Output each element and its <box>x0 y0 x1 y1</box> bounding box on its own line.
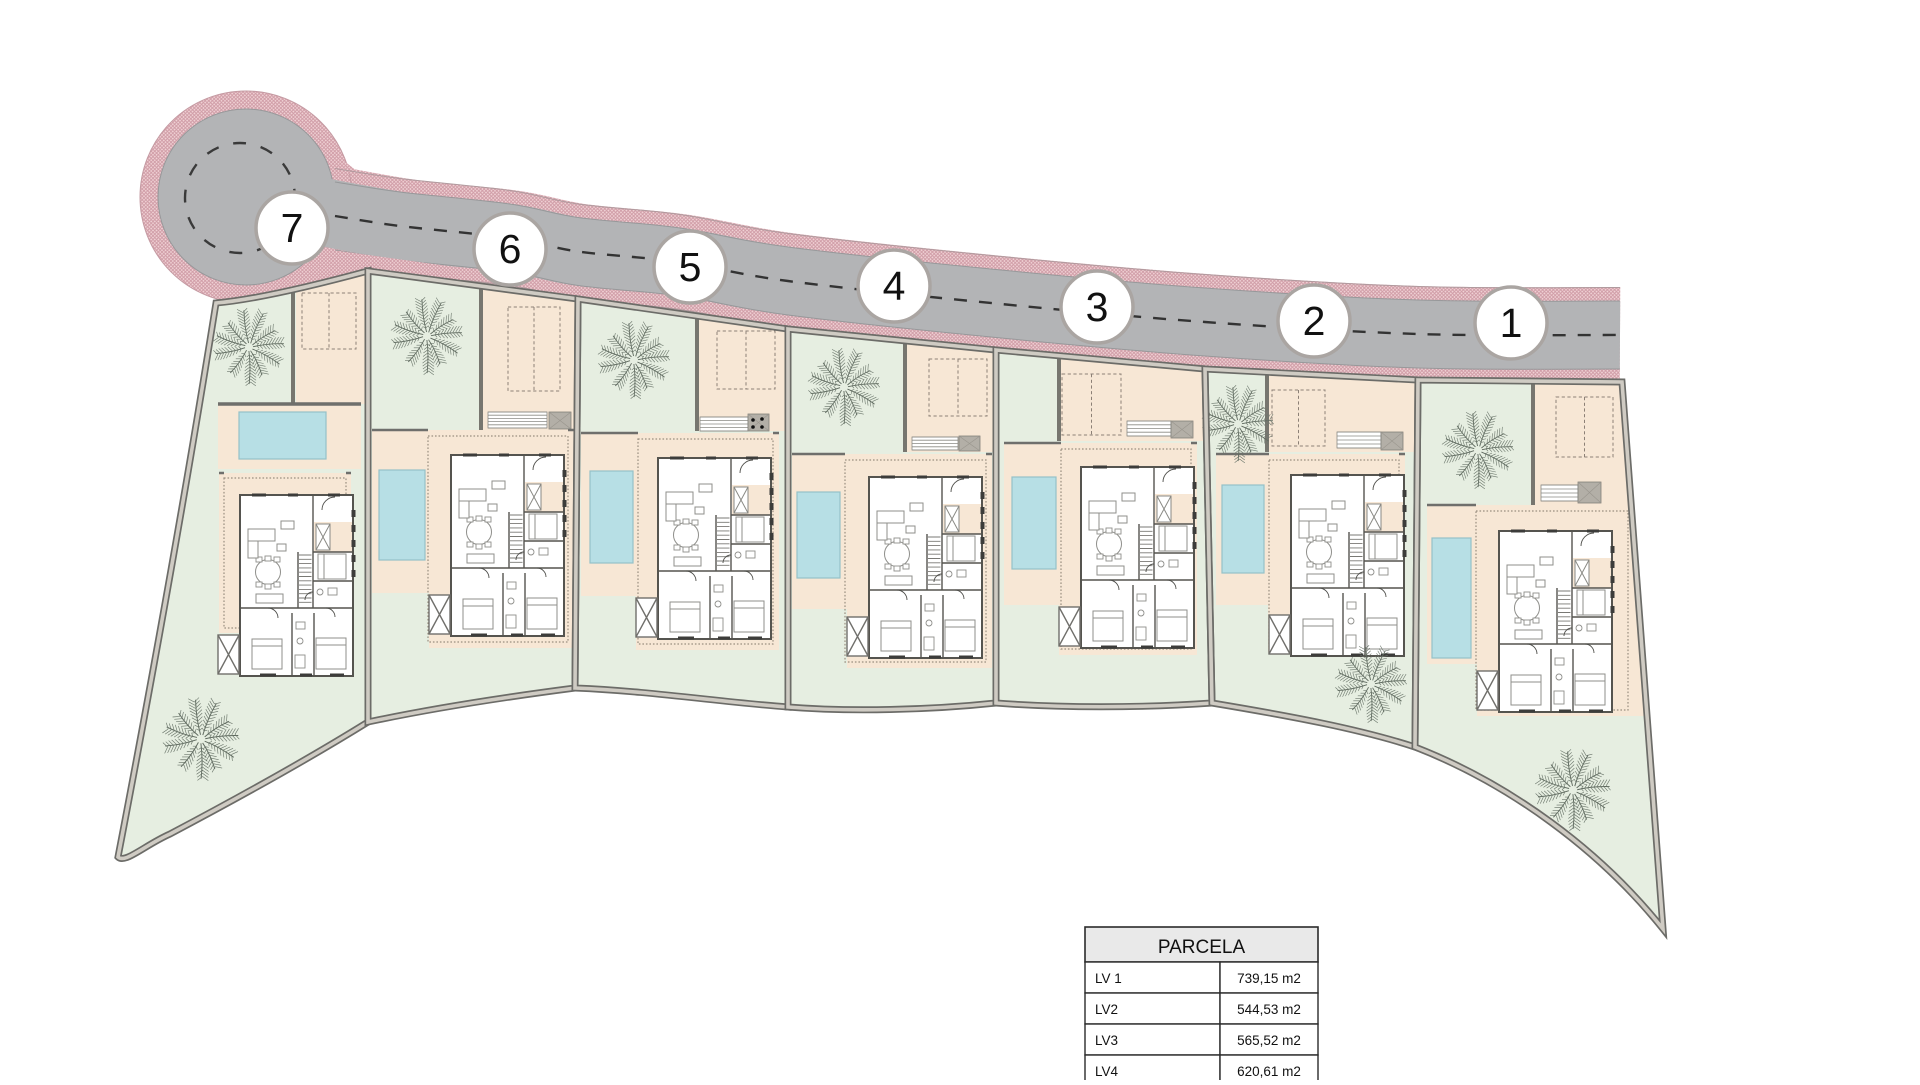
svg-text:7: 7 <box>281 205 304 251</box>
svg-text:620,61 m2: 620,61 m2 <box>1237 1064 1301 1079</box>
svg-text:544,53 m2: 544,53 m2 <box>1237 1002 1301 1017</box>
svg-text:3: 3 <box>1086 284 1109 330</box>
svg-text:PARCELA: PARCELA <box>1158 937 1246 958</box>
svg-text:6: 6 <box>499 226 522 272</box>
svg-text:2: 2 <box>1303 298 1326 344</box>
svg-text:LV4: LV4 <box>1095 1064 1119 1079</box>
svg-text:LV 1: LV 1 <box>1095 971 1122 986</box>
svg-text:4: 4 <box>883 263 906 309</box>
svg-text:5: 5 <box>679 244 702 290</box>
svg-text:LV3: LV3 <box>1095 1033 1118 1048</box>
svg-text:739,15 m2: 739,15 m2 <box>1237 971 1301 986</box>
svg-text:565,52 m2: 565,52 m2 <box>1237 1033 1301 1048</box>
svg-text:1: 1 <box>1500 300 1523 346</box>
svg-text:LV2: LV2 <box>1095 1002 1118 1017</box>
